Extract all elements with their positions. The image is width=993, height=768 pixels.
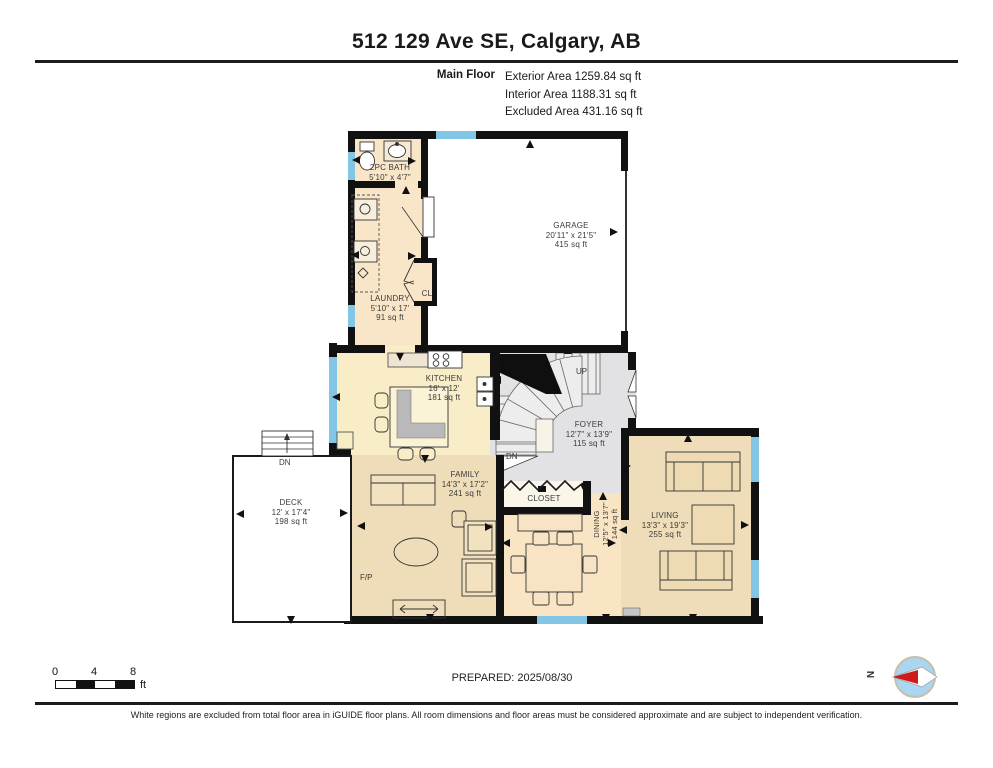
label-deck: DECK 12' x 17'4" 198 sq ft	[251, 498, 331, 527]
label-fireplace: F/P	[360, 573, 372, 582]
label-garage: GARAGE 20'11" x 21'5" 415 sq ft	[521, 221, 621, 250]
disclaimer-text: White regions are excluded from total fl…	[0, 710, 993, 720]
label-family: FAMILY 14'3" x 17'2" 241 sq ft	[425, 470, 505, 499]
floor-plan-svg	[0, 0, 993, 768]
wall-stub-gray	[623, 608, 640, 616]
label-living: LIVING 13'3" x 19'3" 255 sq ft	[625, 511, 705, 540]
prepared-date: PREPARED: 2025/08/30	[0, 672, 993, 684]
label-bath: 2PC BATH 5'10" x 4'7"	[350, 163, 430, 182]
label-closet: CLOSET	[504, 494, 584, 504]
label-foyer: FOYER 12'7" x 13'9" 115 sq ft	[549, 420, 629, 449]
floorplan-page: 512 129 Ave SE, Calgary, AB Main Floor E…	[0, 0, 993, 768]
compass-north-label: N	[864, 671, 875, 678]
label-dining: DINING 12'5" x 13'7" 144 sq ft	[592, 479, 622, 569]
label-stairs-up: UP	[576, 367, 587, 376]
footer-divider	[35, 702, 958, 705]
label-cl: CL	[416, 289, 438, 299]
label-stairs-down: DN	[506, 452, 518, 461]
label-kitchen: KITCHEN 16' x 12' 181 sq ft	[404, 374, 484, 403]
label-deck-stairs-down: DN	[279, 458, 291, 467]
